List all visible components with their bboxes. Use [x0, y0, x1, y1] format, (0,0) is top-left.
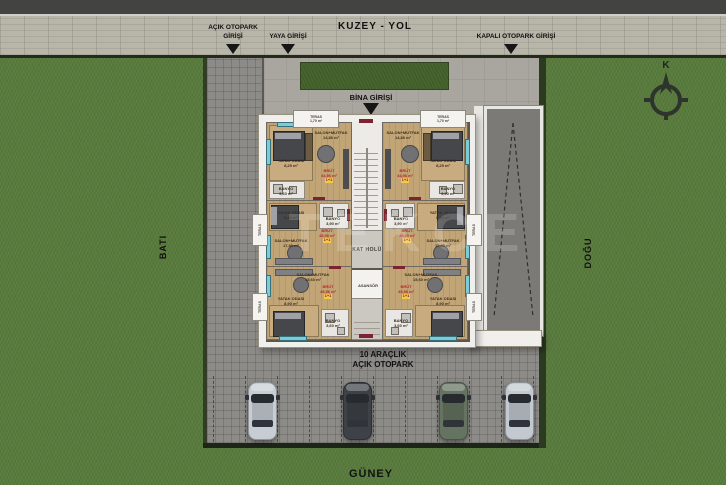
- terrace: TERAS: [252, 293, 268, 321]
- bed-pillow: [433, 313, 459, 319]
- bed-pillow: [275, 133, 301, 139]
- car-mirror: [276, 395, 280, 400]
- unit-type-badge: 1+1: [401, 178, 410, 183]
- wardrobe: [423, 133, 431, 161]
- car-glass-f: [508, 394, 531, 403]
- building-entrance-label: BİNA GİRİŞİ: [301, 93, 441, 102]
- car-glass-f: [251, 394, 274, 403]
- car-glass-r: [509, 420, 530, 427]
- parking-stall-line: [405, 376, 406, 442]
- watermark: TEKCE: [285, 202, 535, 264]
- room-label-bedroom_area: 8,25 m²: [269, 164, 313, 169]
- car-mirror: [371, 395, 375, 400]
- terrace-area: 1,70 m²: [437, 119, 449, 123]
- terrace: TERAS: [466, 293, 482, 321]
- compass-icon: [642, 70, 690, 122]
- building-entry-door: [359, 119, 373, 123]
- apartment-unit-bottom-left: SALON+MUTFAK15,60 m²YATAK ODASI8,90 m²BA…: [266, 266, 352, 340]
- room-label: BANYO3,90 m²: [431, 187, 465, 196]
- window: [465, 139, 470, 165]
- car-glass-r: [443, 420, 464, 427]
- room-label: YATAK ODASI8,25 m²: [269, 159, 313, 168]
- direction-west-label: BATI: [148, 217, 178, 277]
- parking-stall-line: [469, 376, 470, 442]
- car-roof: [443, 403, 464, 420]
- room-label: BANYO3,60 m²: [269, 187, 303, 196]
- corridor-steps: [354, 317, 380, 335]
- room-label: BANYO3,60 m²: [385, 319, 417, 328]
- parking-stall-line: [245, 376, 246, 442]
- car-mirror: [340, 395, 344, 400]
- apartment-unit-bottom-right: SALON+MUTFAK15,60 m²YATAK ODASI8,90 m²BA…: [382, 266, 468, 340]
- direction-south-label: GÜNEY: [321, 468, 421, 480]
- car-mirror: [467, 395, 471, 400]
- car-mirror: [436, 395, 440, 400]
- car-4: [505, 382, 534, 440]
- terrace-label: TERAS: [472, 301, 476, 313]
- car-glass-r: [252, 420, 273, 427]
- kerb-bottom: [203, 443, 543, 448]
- parking-capacity-label-line2: AÇIK OTOPARK: [333, 360, 433, 369]
- unit-type-badge: 1+1: [324, 294, 333, 299]
- apartment-unit-top-left: YATAK ODASI8,25 m²SALON+MUTFAK14,86 m²BA…: [266, 122, 352, 202]
- unit-info-label: BRÜT44,96 m²1+1: [387, 169, 423, 183]
- room-label-bath_area: 3,60 m²: [269, 192, 303, 197]
- room-label-living_area: 15,60 m²: [399, 278, 443, 283]
- closed-parking-entrance-arrow-icon: [504, 44, 518, 54]
- terrace-area: 1,70 m²: [310, 119, 322, 123]
- room-label-living_area: 14,86 m²: [383, 136, 423, 141]
- room-label: SALON+MUTFAK14,86 m²: [383, 131, 423, 140]
- parking-stall-line: [309, 376, 310, 442]
- apartment-unit-top-right: YATAK ODASI8,25 m²SALON+MUTFAK14,86 m²BA…: [382, 122, 468, 202]
- window: [279, 336, 307, 341]
- unit-info-label: BRÜT45,96 m²1+1: [389, 285, 423, 299]
- car-glass-r: [347, 420, 368, 427]
- north-road: [0, 0, 726, 16]
- dining-table: [401, 145, 419, 163]
- room-label: SALON+MUTFAK15,60 m²: [399, 273, 443, 282]
- parking-stall-line: [437, 376, 438, 442]
- room-label: SALON+MUTFAK14,86 m²: [311, 131, 351, 140]
- entry-door: [329, 266, 341, 269]
- car-hood: [346, 384, 369, 391]
- unit-info-label: BRÜT44,96 m²1+1: [311, 169, 347, 183]
- road-label: KUZEY - YOL: [300, 21, 450, 32]
- parking-stall-line: [213, 376, 214, 442]
- room-label-bath_area: 3,60 m²: [385, 324, 417, 329]
- parking-stall-line: [373, 376, 374, 442]
- window: [429, 336, 457, 341]
- south-exit-door: [359, 334, 373, 338]
- parking-stall-line: [277, 376, 278, 442]
- parking-capacity-label-line1: 10 ARAÇLIK: [333, 350, 433, 359]
- room-label: YATAK ODASI8,90 m²: [421, 297, 465, 306]
- site-plan: KUZEY - YOL AÇIK OTOPARK GİRİŞİ YAYA GİR…: [0, 0, 726, 485]
- car-hood: [251, 384, 274, 391]
- room-label: SALON+MUTFAK15,60 m²: [291, 273, 335, 282]
- car-1: [248, 382, 277, 440]
- car-hood: [508, 384, 531, 391]
- unit-type-badge: 1+1: [325, 178, 334, 183]
- room-label-living_area: 14,86 m²: [311, 136, 351, 141]
- open-parking-entrance-arrow-icon: [226, 44, 240, 54]
- room-label: BANYO3,60 m²: [317, 319, 349, 328]
- entry-door: [393, 266, 405, 269]
- car-glass-f: [346, 394, 369, 403]
- room-label: YATAK ODASI8,90 m²: [269, 297, 313, 306]
- room-label: YATAK ODASI8,25 m²: [421, 159, 465, 168]
- terrace-label: TERAS: [258, 301, 262, 313]
- car-mirror: [502, 395, 506, 400]
- car-2: [343, 382, 372, 440]
- bed-pillow: [433, 133, 459, 139]
- terrace-label: TERAS: [258, 224, 262, 236]
- car-glass-f: [442, 394, 465, 403]
- parking-stall-line: [341, 376, 342, 442]
- room-label-bath_area: 3,90 m²: [431, 192, 465, 197]
- room-label-bedroom_area: 8,90 m²: [269, 302, 313, 307]
- room-label-bedroom_area: 8,25 m²: [421, 164, 465, 169]
- car-hood: [442, 384, 465, 391]
- direction-east-label: DOĞU: [573, 223, 603, 283]
- closed-parking-entrance-label: KAPALI OTOPARK GİRİŞİ: [441, 33, 591, 40]
- car-mirror: [533, 395, 537, 400]
- dining-table: [317, 145, 335, 163]
- terrace: TERAS1,70 m²: [420, 110, 466, 128]
- room-label-bath_area: 3,60 m²: [317, 324, 349, 329]
- terrace: TERAS: [252, 214, 268, 246]
- room-label-living_area: 15,60 m²: [291, 278, 335, 283]
- room-label-bedroom_area: 8,90 m²: [421, 302, 465, 307]
- unit-info-label: BRÜT45,96 m²1+1: [311, 285, 345, 299]
- car-roof: [252, 403, 273, 420]
- toilet: [391, 327, 399, 335]
- car-roof: [509, 403, 530, 420]
- toilet: [337, 327, 345, 335]
- car-3: [439, 382, 468, 440]
- hedge-strip: [300, 62, 449, 90]
- car-mirror: [245, 395, 249, 400]
- bed-pillow: [275, 313, 301, 319]
- open-parking-entrance-label-line1: AÇIK OTOPARK: [183, 24, 283, 31]
- pedestrian-entrance-label: YAYA GİRİŞİ: [238, 33, 338, 40]
- pedestrian-entrance-arrow-icon: [281, 44, 295, 54]
- elevator-label: ASANSÖR: [358, 283, 378, 288]
- south-wall-band: [466, 330, 542, 347]
- unit-type-badge: 1+1: [402, 294, 411, 299]
- terrace: TERAS1,70 m²: [293, 110, 339, 128]
- parking-stall-line: [501, 376, 502, 442]
- car-roof: [347, 403, 368, 420]
